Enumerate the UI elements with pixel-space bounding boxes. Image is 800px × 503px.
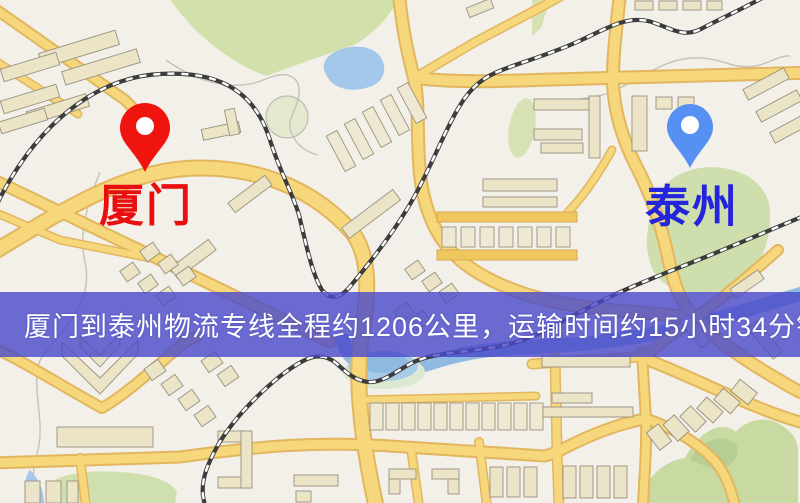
map-screenshot: 厦门 泰州 厦门到泰州物流专线全程约1206公里，运输时间约15小时34分钟. (0, 0, 800, 503)
origin-city-label: 厦门 (99, 183, 193, 228)
route-info-text: 厦门到泰州物流专线全程约1206公里，运输时间约15小时34分钟. (0, 305, 800, 344)
destination-city-label: 泰州 (645, 184, 739, 229)
route-info-banner: 厦门到泰州物流专线全程约1206公里，运输时间约15小时34分钟. (0, 292, 800, 357)
map-canvas[interactable] (0, 0, 800, 503)
